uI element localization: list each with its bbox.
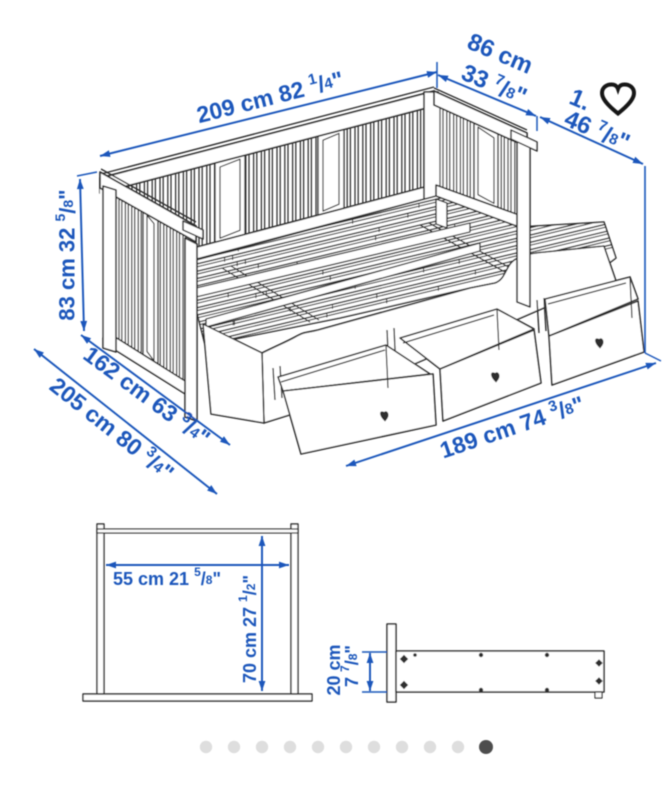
svg-text:55 cm 21 5/8​": 55 cm 21 5/8​" [113,565,221,589]
svg-text:7 7/8​": 7 7/8​" [338,645,362,687]
svg-text:83 cm 32 5/8​": 83 cm 32 5/8​" [52,189,80,320]
svg-text:70 cm 27 1/2​": 70 cm 27 1/2​" [236,575,260,683]
